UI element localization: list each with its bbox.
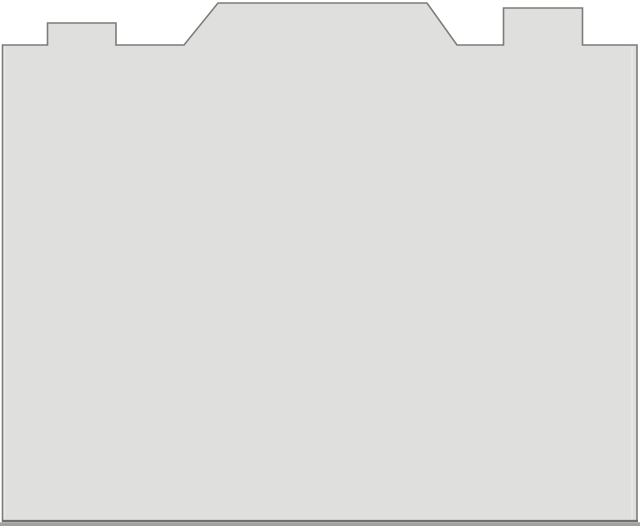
silhouette-drawing (0, 0, 640, 526)
bottom-gray-strip (0, 522, 640, 526)
canvas (0, 0, 640, 526)
panel-silhouette-shape (3, 3, 638, 521)
